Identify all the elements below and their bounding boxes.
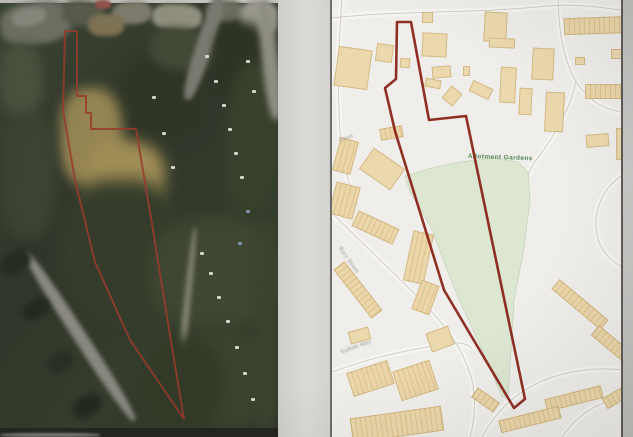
site-boundary-overlay-map: [332, 0, 621, 437]
page-edge-strip: [621, 0, 633, 437]
scanned-page: Allotment Gardens CourtBury StreetSuffol…: [0, 0, 633, 437]
aerial-photo-panel: [0, 0, 278, 437]
red-site-boundary-aerial: [63, 31, 184, 419]
site-boundary-overlay-aerial: [0, 0, 278, 437]
page-gap: [278, 0, 330, 437]
street-map-panel: Allotment Gardens CourtBury StreetSuffol…: [330, 0, 621, 437]
red-site-boundary-map: [385, 22, 525, 408]
